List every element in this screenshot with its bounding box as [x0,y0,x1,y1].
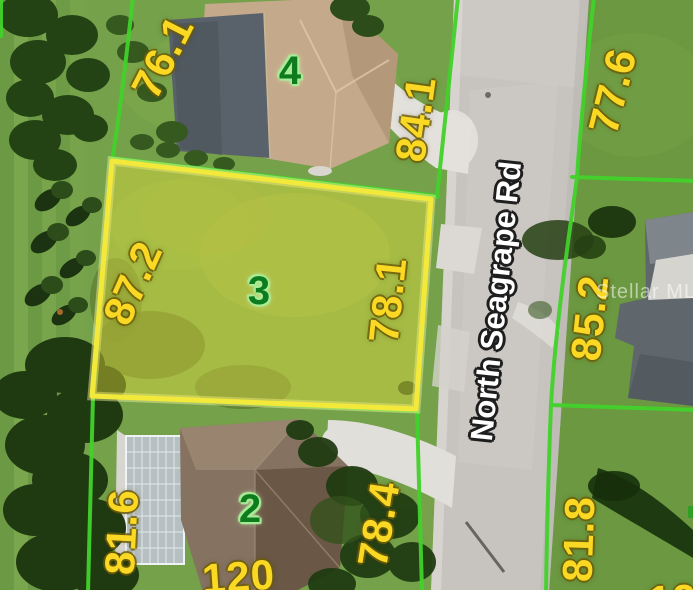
parcel-number-3: 3 [248,271,270,311]
clipped-green-label [688,506,693,518]
palm-tree [588,206,636,238]
watermark: Stellar MLS [596,282,693,302]
dimension-label-lot-se-west: 81.8 [557,495,602,582]
dimension-label-lot4-east: 84.1 [389,74,443,165]
dimension-label-lot2-south: 120 [201,554,277,590]
dimension-label-lot3-east: 78.1 [363,255,414,345]
dimension-label-lot2-west: 81.6 [99,488,145,576]
aerial-parcel-map: 76.1 84.1 87.2 78.1 77.6 85.2 81.6 78.4 … [0,0,693,590]
sidewalk-crossing [436,224,482,274]
dimension-label-lot-se-south-partial: 120 [647,578,693,590]
parcel-number-2: 2 [239,489,261,529]
parcel-number-4: 4 [279,51,301,91]
